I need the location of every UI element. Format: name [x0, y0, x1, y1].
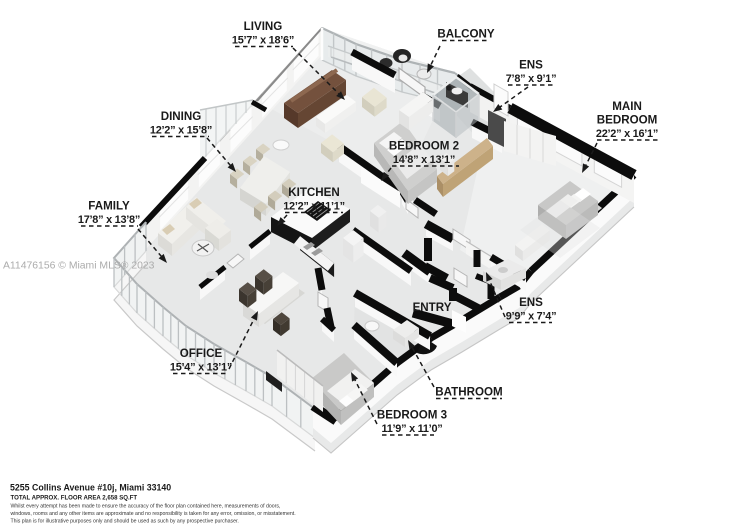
- svg-text:Whilst every attempt has been: Whilst every attempt has been made to en…: [11, 504, 281, 510]
- svg-text:ENS: ENS: [519, 58, 543, 71]
- svg-text:11’9” x 11’0”: 11’9” x 11’0”: [382, 423, 443, 435]
- svg-text:5255 Collins Avenue #10j, Miam: 5255 Collins Avenue #10j, Miami 33140: [10, 483, 171, 493]
- svg-text:12’2” x 11’1”: 12’2” x 11’1”: [283, 200, 345, 212]
- svg-text:DINING: DINING: [161, 110, 202, 123]
- svg-text:BALCONY: BALCONY: [437, 27, 495, 40]
- svg-text:KITCHEN: KITCHEN: [288, 186, 340, 199]
- svg-text:FAMILY: FAMILY: [88, 199, 130, 212]
- svg-text:14’8” x 13’1”: 14’8” x 13’1”: [393, 154, 455, 166]
- svg-text:12’2” x 15’8”: 12’2” x 15’8”: [150, 124, 212, 136]
- svg-text:LIVING: LIVING: [244, 20, 283, 33]
- svg-text:7’8” x 9’1”: 7’8” x 9’1”: [506, 73, 557, 85]
- svg-text:15’7” x 18’6”: 15’7” x 18’6”: [232, 34, 294, 46]
- svg-text:BATHROOM: BATHROOM: [435, 385, 502, 398]
- svg-text:MAIN: MAIN: [612, 100, 642, 113]
- svg-text:22’2” x 16’1”: 22’2” x 16’1”: [596, 128, 658, 140]
- svg-text:OFFICE: OFFICE: [180, 347, 223, 360]
- svg-text:9’9” x 7’4”: 9’9” x 7’4”: [506, 310, 557, 322]
- svg-text:ENS: ENS: [519, 296, 543, 309]
- svg-text:windows, rooms and any other i: windows, rooms and any other items are a…: [11, 511, 296, 517]
- svg-text:ENTRY: ENTRY: [413, 301, 452, 314]
- svg-text:BEDROOM: BEDROOM: [597, 113, 658, 126]
- svg-text:A11476156 © Miami MLS® 2023: A11476156 © Miami MLS® 2023: [3, 261, 155, 272]
- svg-text:BEDROOM 2: BEDROOM 2: [389, 139, 459, 152]
- svg-text:BEDROOM 3: BEDROOM 3: [377, 408, 448, 421]
- svg-text:This plan is for illustrative: This plan is for illustrative purposes o…: [11, 519, 239, 525]
- svg-text:15’4” x 13’1”: 15’4” x 13’1”: [170, 361, 232, 373]
- svg-text:TOTAL APPROX. FLOOR AREA 2,658: TOTAL APPROX. FLOOR AREA 2,658 SQ.FT: [11, 494, 138, 501]
- svg-text:17’8” x 13’8”: 17’8” x 13’8”: [78, 214, 140, 226]
